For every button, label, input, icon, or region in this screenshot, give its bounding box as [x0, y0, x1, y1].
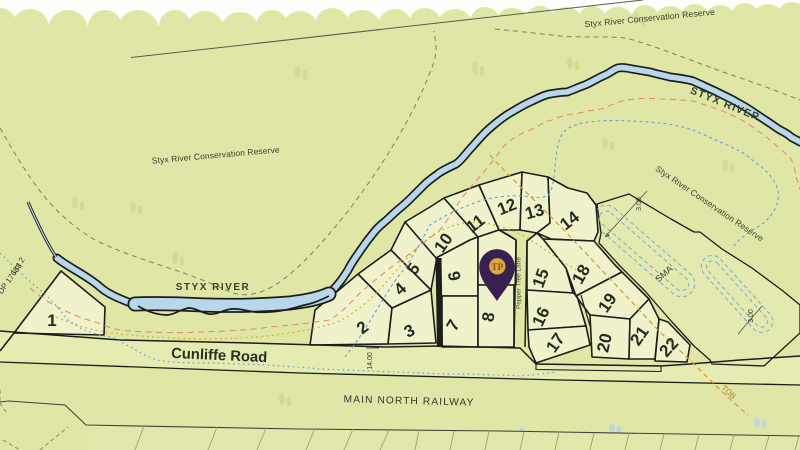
- svg-text:14.00: 14.00: [367, 352, 374, 370]
- svg-text:STYX RIVER: STYX RIVER: [176, 282, 250, 293]
- svg-text:Pepper Tree Lane: Pepper Tree Lane: [516, 257, 523, 309]
- svg-text:20: 20: [593, 332, 616, 354]
- svg-text:1: 1: [47, 311, 56, 330]
- svg-text:TP: TP: [491, 263, 503, 273]
